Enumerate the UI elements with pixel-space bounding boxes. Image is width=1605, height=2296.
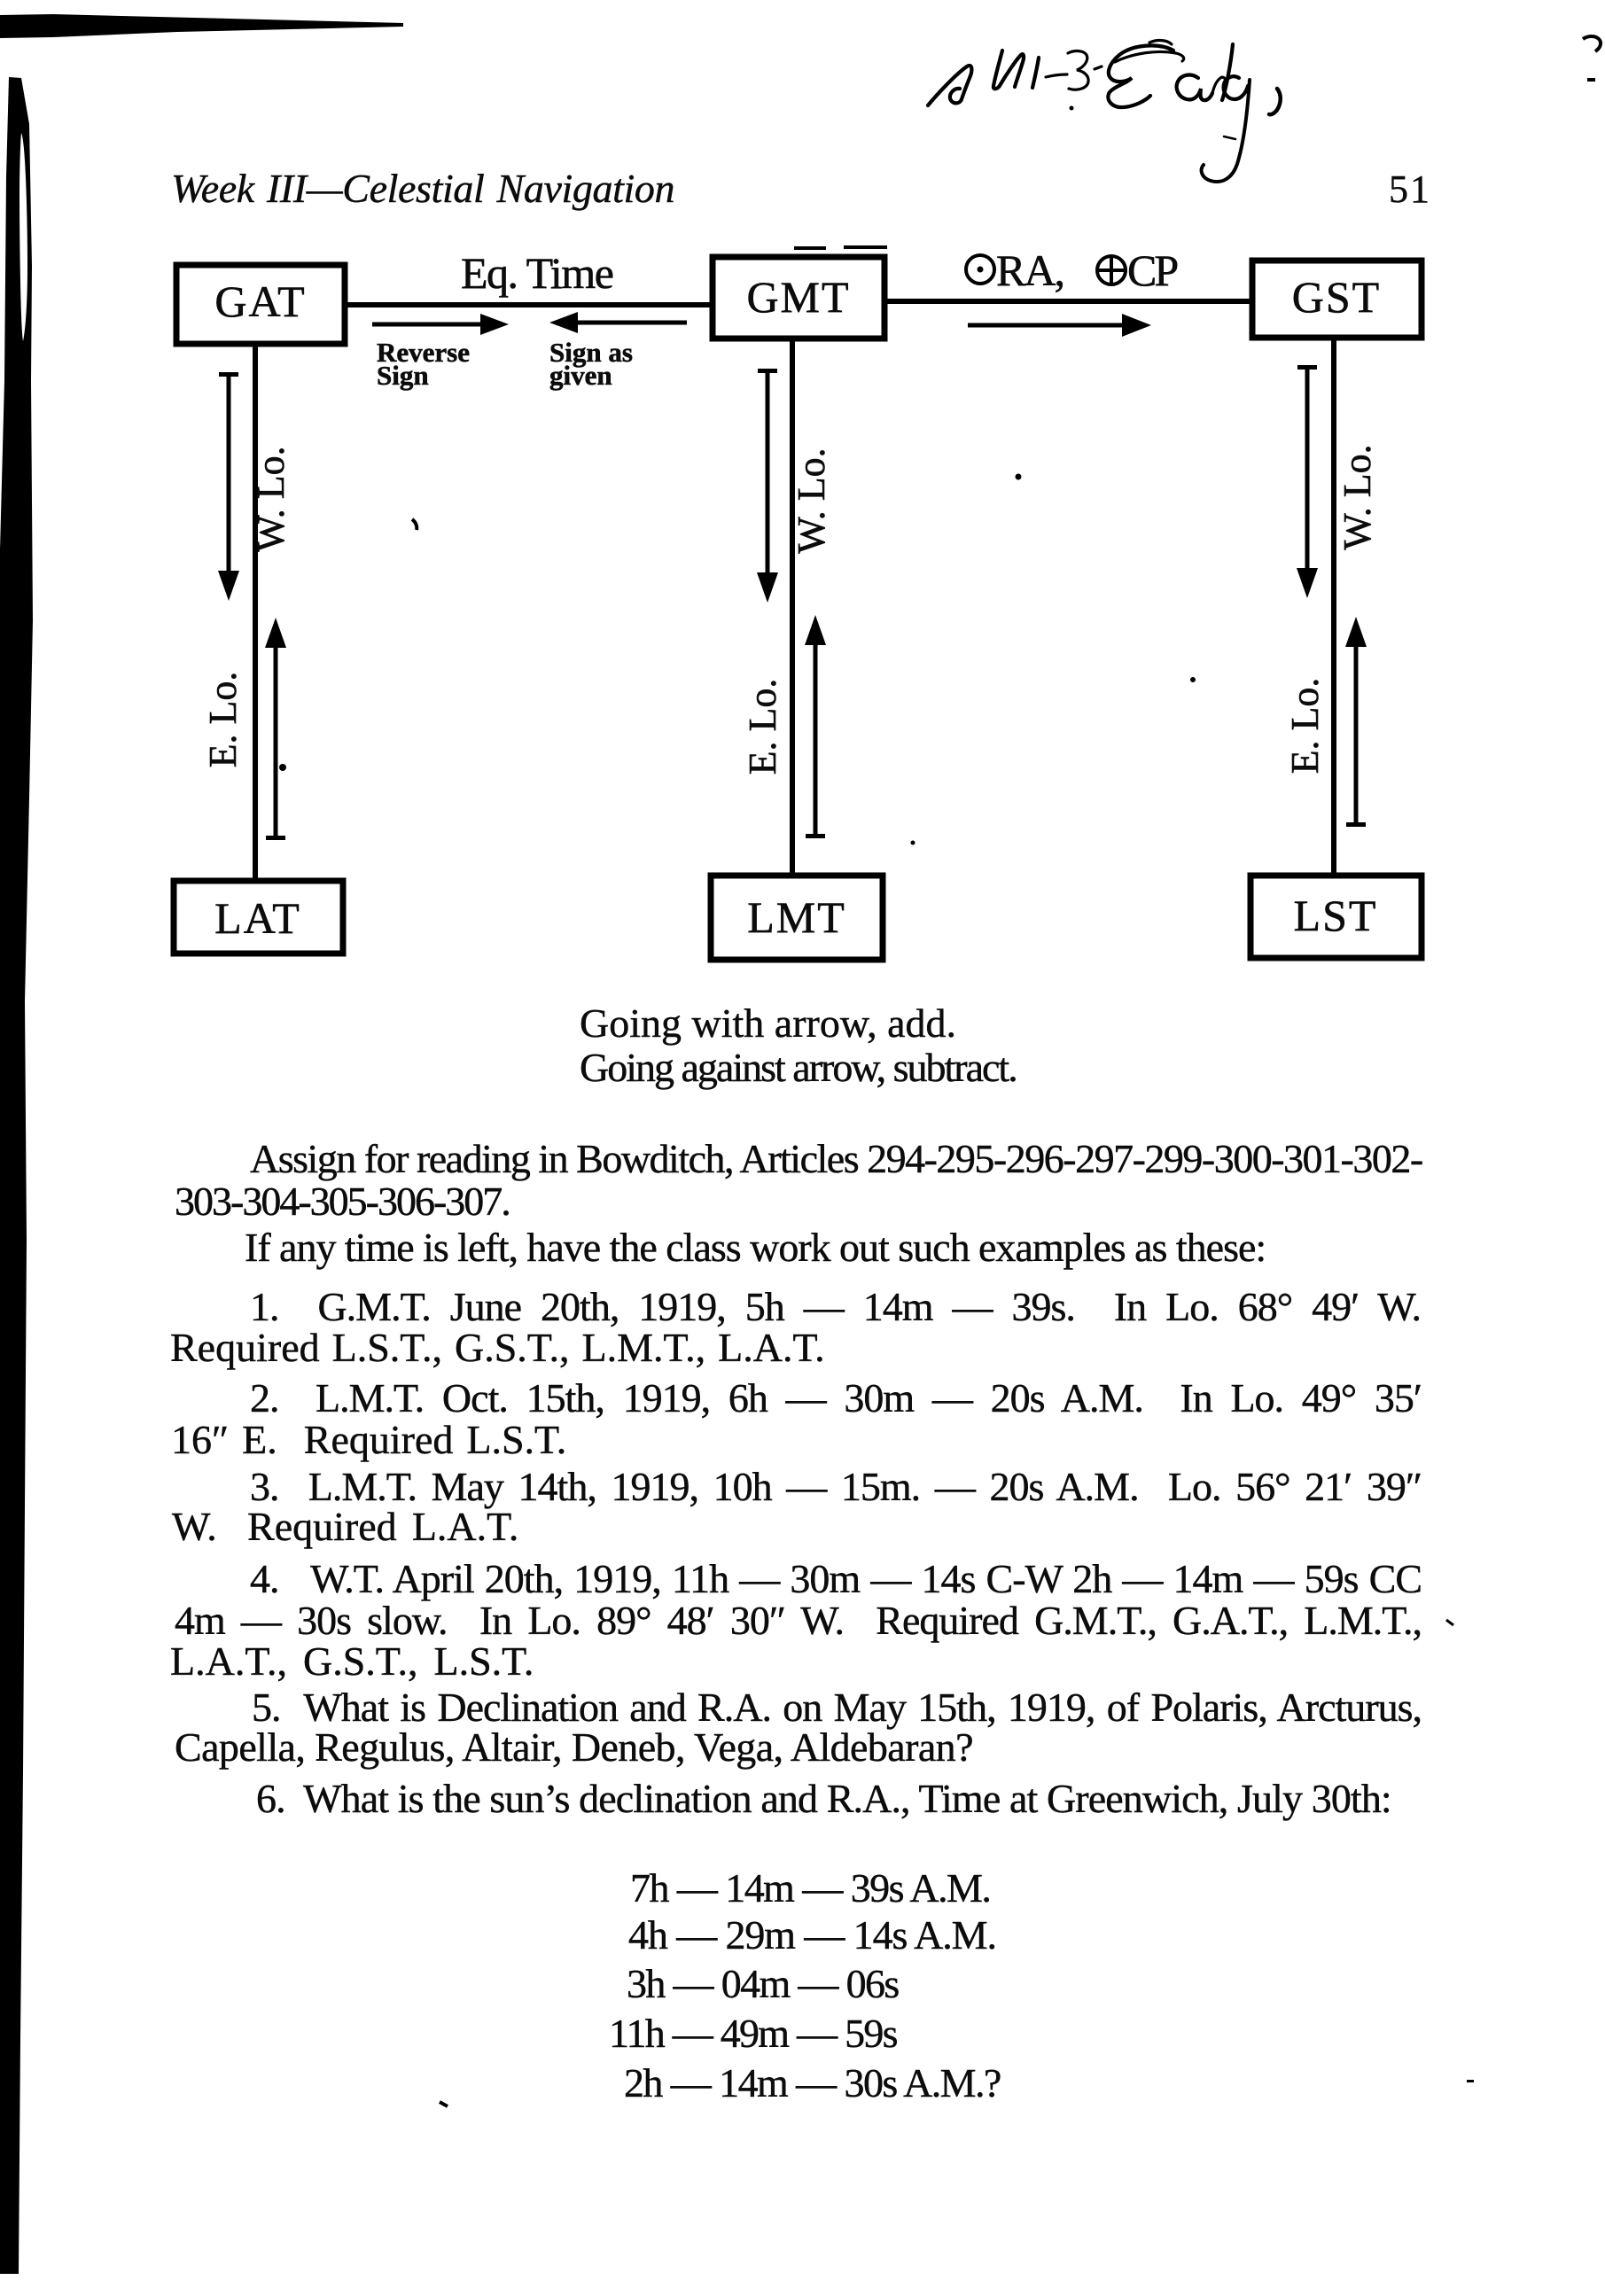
svg-text:E. Lo.: E. Lo. bbox=[741, 679, 784, 775]
svg-text:RA,: RA, bbox=[996, 245, 1064, 295]
svg-text:GAT: GAT bbox=[214, 276, 306, 326]
svg-text:GMT: GMT bbox=[746, 272, 850, 322]
svg-text:LST: LST bbox=[1294, 891, 1378, 940]
svg-text:LAT: LAT bbox=[214, 893, 301, 943]
svg-text:GST: GST bbox=[1292, 272, 1381, 322]
svg-text:W. Lo.: W. Lo. bbox=[1336, 444, 1379, 549]
svg-text:E. Lo.: E. Lo. bbox=[1283, 678, 1327, 774]
svg-text:W. Lo.: W. Lo. bbox=[790, 448, 833, 553]
svg-text:Eq. Time: Eq. Time bbox=[461, 248, 613, 298]
svg-text:given: given bbox=[549, 360, 612, 391]
svg-text:CP: CP bbox=[1127, 245, 1177, 295]
svg-text:LMT: LMT bbox=[747, 892, 846, 942]
svg-text:W. Lo.: W. Lo. bbox=[249, 446, 292, 551]
svg-text:Sign: Sign bbox=[377, 360, 429, 391]
svg-text:E. Lo.: E. Lo. bbox=[201, 672, 245, 768]
